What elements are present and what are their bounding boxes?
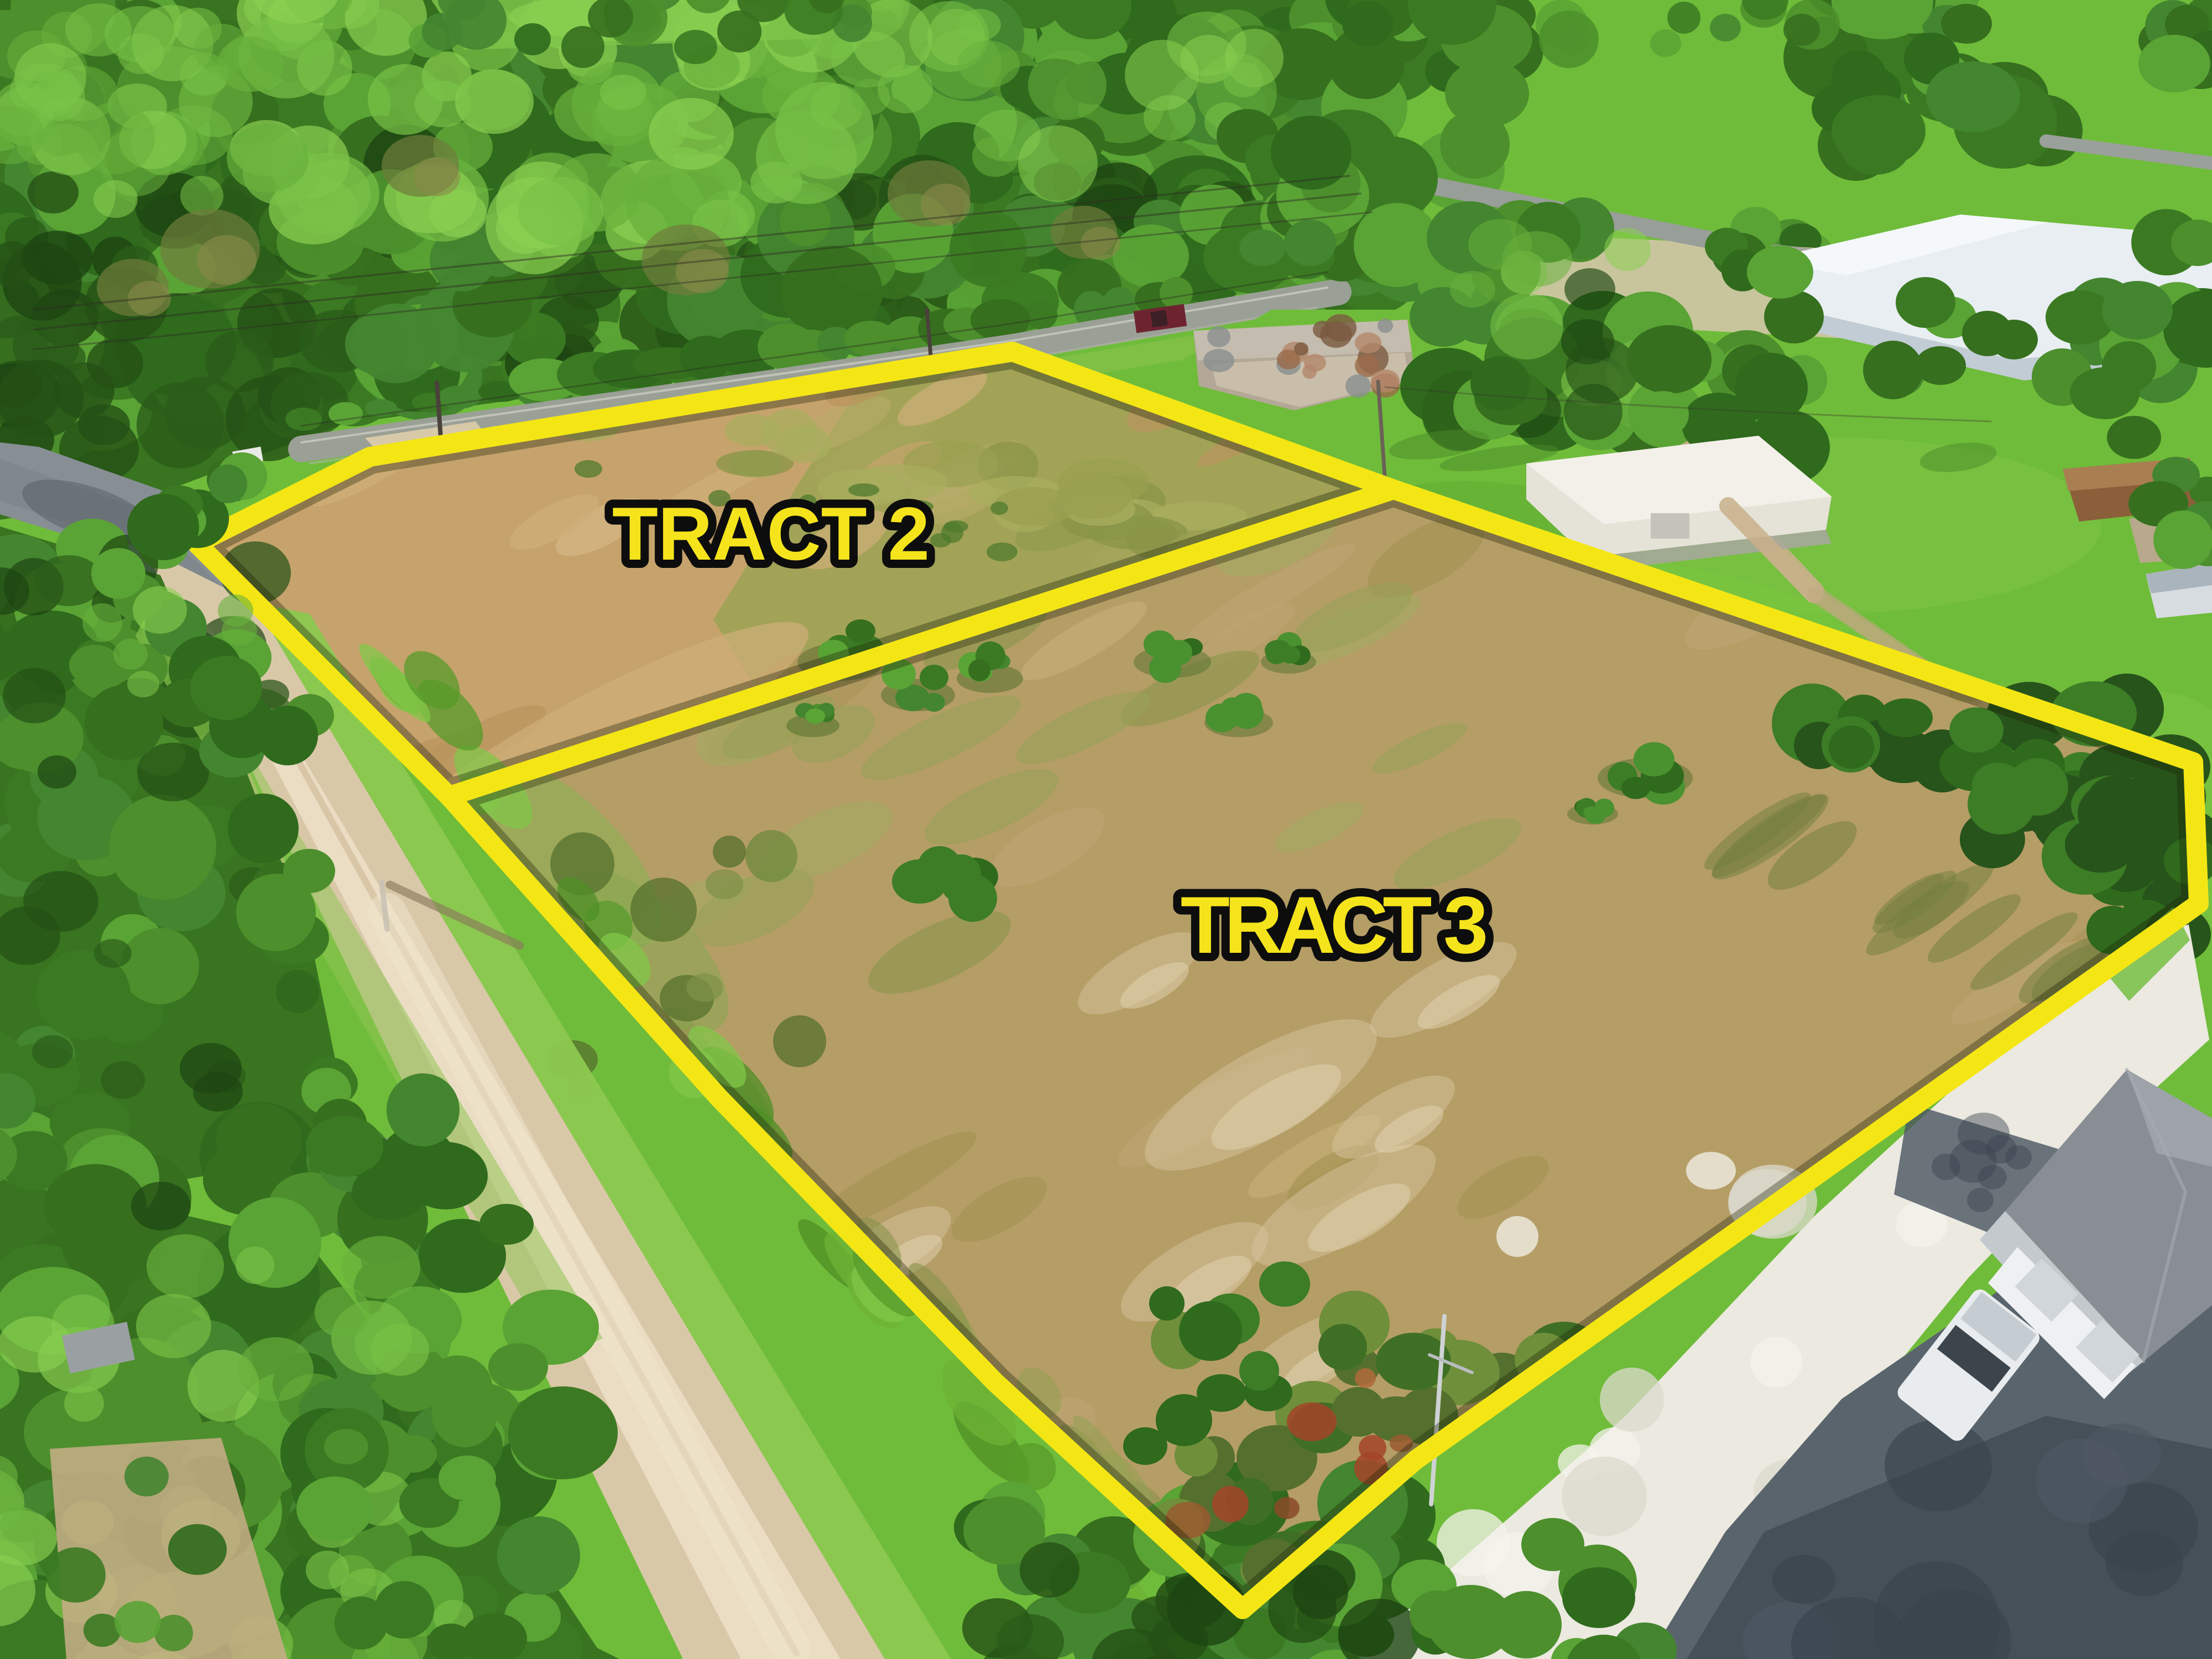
svg-text:TRACT 2: TRACT 2: [612, 492, 930, 576]
svg-text:TRACT 3: TRACT 3: [1181, 880, 1485, 970]
